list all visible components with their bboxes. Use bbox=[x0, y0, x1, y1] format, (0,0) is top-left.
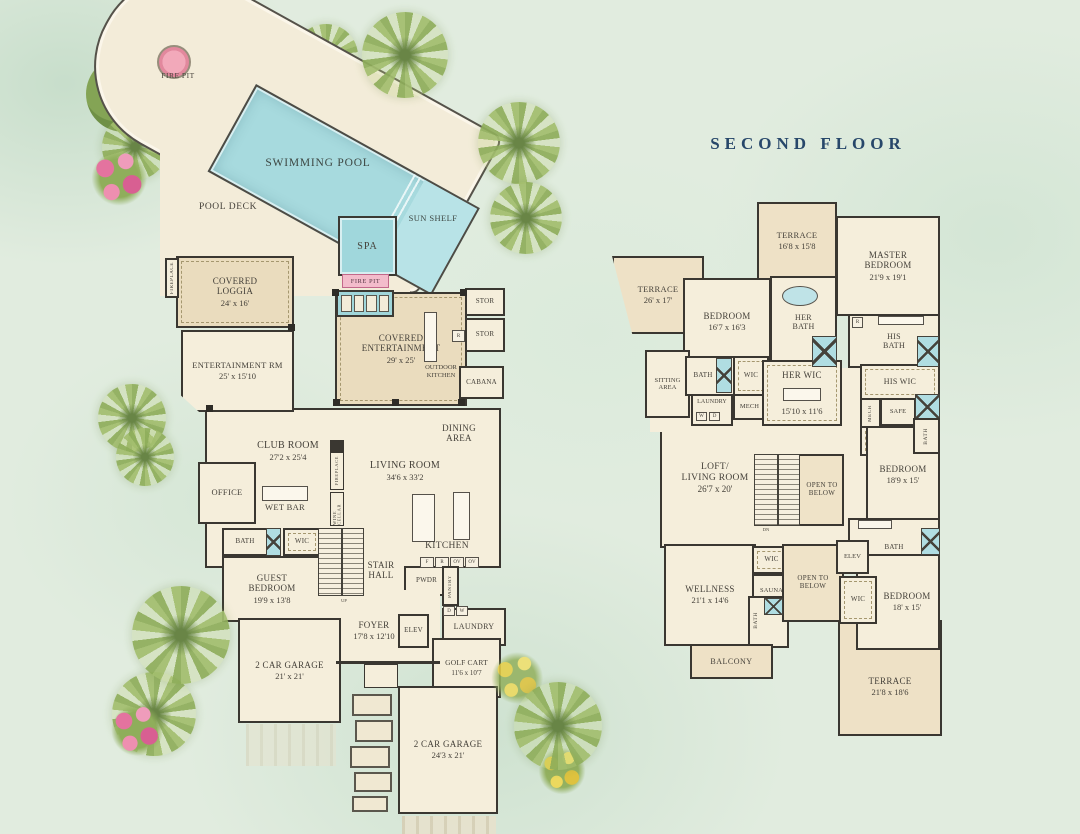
covered-loggia: COVERED LOGGIA 24' x 16' bbox=[176, 256, 294, 328]
wine-cellar: WINE CELLAR bbox=[330, 492, 344, 526]
room-size: 18'9 x 15' bbox=[887, 475, 920, 485]
room-size: 15'10 x 11'6 bbox=[782, 406, 823, 416]
room-name: SITTING AREA bbox=[655, 377, 681, 392]
storage-2: STOR bbox=[465, 318, 505, 352]
column-post bbox=[460, 289, 467, 296]
garage-2: 2 CAR GARAGE 24'3 x 21' bbox=[398, 686, 498, 814]
bath-1: BATH bbox=[222, 528, 268, 556]
room-size: 16'7 x 16'3 bbox=[708, 322, 745, 332]
living-fireplace: FIREPLACE bbox=[330, 452, 344, 490]
entry-porch bbox=[364, 664, 398, 688]
kitchen-island-2 bbox=[453, 492, 470, 540]
stair-hall-label: STAIR HALL bbox=[358, 560, 404, 580]
room-name: SAUNA bbox=[760, 587, 783, 594]
wet-bar-counter bbox=[262, 486, 308, 501]
outdoor-kitchen-island bbox=[424, 312, 437, 362]
room-name: TERRACE bbox=[868, 676, 911, 686]
room-name: HIS BATH bbox=[883, 332, 905, 350]
room-name: 2 CAR GARAGE bbox=[414, 739, 483, 749]
outdoor-kitchen-label: OUTDOOR KITCHEN bbox=[417, 364, 465, 380]
room-name: GUEST BEDROOM bbox=[248, 573, 295, 593]
open-to-below-label: OPEN TO BELOW bbox=[797, 575, 828, 591]
plant-pink-flowers bbox=[106, 700, 166, 760]
room-name: MASTER BEDROOM bbox=[864, 250, 911, 270]
room-name: ELEV bbox=[844, 553, 861, 560]
stepping-stone bbox=[350, 746, 390, 768]
room-name: BEDROOM bbox=[879, 464, 926, 474]
room-size: 17'8 x 12'10 bbox=[353, 631, 394, 641]
driveway-2 bbox=[246, 724, 336, 766]
room-name: SAFE bbox=[890, 408, 906, 415]
room-name: HER WIC bbox=[782, 370, 822, 380]
room-size: 21'1 x 14'6 bbox=[691, 595, 728, 605]
swimming-pool-label: SWIMMING POOL bbox=[262, 157, 374, 169]
room-size: 21'8 x 18'6 bbox=[871, 687, 908, 697]
chip-label: W bbox=[699, 414, 704, 419]
stepping-stone bbox=[352, 796, 388, 812]
room-name: LAUNDRY bbox=[697, 399, 727, 406]
her-shower bbox=[812, 336, 837, 367]
staircase-2 bbox=[754, 454, 800, 526]
up-label: UP bbox=[336, 598, 352, 603]
wine-cellar-label: WINE CELLAR bbox=[333, 493, 342, 525]
kitchen-island bbox=[412, 494, 435, 542]
room-name: TERRACE bbox=[777, 231, 818, 241]
loft-label: LOFT/ LIVING ROOM 26'7 x 20' bbox=[672, 462, 758, 495]
his-bath-vanity bbox=[878, 316, 924, 325]
wellness-room: WELLNESS 21'1 x 14'6 bbox=[664, 544, 756, 646]
sun-shelf-label: SUN SHELF bbox=[400, 213, 466, 223]
pantry-label: PANTRY bbox=[448, 575, 453, 598]
room-name: WELLNESS bbox=[685, 584, 734, 594]
elevator-2: ELEV bbox=[836, 540, 869, 574]
shower-3 bbox=[915, 394, 940, 420]
chip-label: W bbox=[460, 609, 465, 614]
room-name: STAIR HALL bbox=[368, 560, 395, 580]
mech-label: MECH bbox=[868, 405, 873, 422]
dn-label: DN bbox=[758, 527, 774, 532]
plant-pink-flowers bbox=[86, 146, 150, 210]
pantry: PANTRY bbox=[442, 566, 459, 606]
his-bath-chip: R bbox=[852, 317, 863, 328]
storage-1: STOR bbox=[465, 288, 505, 316]
shower-1 bbox=[266, 528, 281, 556]
plant-palm bbox=[362, 12, 448, 98]
room-name: BATH bbox=[693, 372, 712, 380]
room-size: 34'6 x 33'2 bbox=[386, 472, 423, 482]
plant-palm bbox=[132, 586, 230, 684]
column-post bbox=[392, 399, 399, 406]
stepping-stone bbox=[354, 772, 392, 792]
master-bedroom: MASTER BEDROOM 21'9 x 19'1 bbox=[836, 216, 940, 316]
room-name: FOYER bbox=[358, 620, 389, 630]
room-name: HER BATH bbox=[792, 313, 814, 331]
plant-palm bbox=[490, 182, 562, 254]
room-name: LAUNDRY bbox=[454, 622, 495, 631]
column-post bbox=[288, 324, 295, 331]
second-floor-title: SECOND FLOOR bbox=[698, 134, 918, 154]
bath-3: BATH bbox=[913, 418, 940, 454]
open-to-below-2: OPEN TO BELOW bbox=[782, 544, 844, 622]
fireplace-label: FIREPLACE bbox=[170, 262, 175, 294]
room-name: CLUB ROOM bbox=[257, 440, 319, 451]
column-post bbox=[333, 399, 340, 406]
cabana: CABANA bbox=[459, 366, 504, 399]
spa: SPA bbox=[338, 216, 397, 276]
stepping-stone bbox=[352, 694, 392, 716]
floor-plan-canvas: FIRE PIT SWIMMING POOL POOL DECK SUN SHE… bbox=[0, 0, 1080, 834]
column-post bbox=[206, 405, 213, 412]
chip-label: R bbox=[440, 560, 443, 565]
room-name: ENTERTAINMENT RM bbox=[192, 361, 283, 371]
oven-chip-2: OV bbox=[465, 557, 479, 568]
dining-area-label: DINING AREA bbox=[430, 423, 488, 443]
balcony: BALCONY bbox=[690, 644, 773, 679]
column-post bbox=[332, 289, 339, 296]
chip-label: D bbox=[713, 414, 717, 419]
room-name: STOR bbox=[476, 331, 495, 339]
room-name: TERRACE bbox=[638, 285, 679, 295]
mech-2: MECH bbox=[860, 398, 881, 428]
fireplace-label: FIREPLACE bbox=[335, 456, 340, 485]
his-shower bbox=[917, 336, 939, 367]
room-size: 27'2 x 25'4 bbox=[269, 452, 306, 462]
room-name: BATH bbox=[235, 538, 254, 546]
room-name: KITCHEN bbox=[425, 541, 469, 552]
washer-chip: W bbox=[456, 606, 468, 616]
entertainment-room: ENTERTAINMENT RM 25' x 15'10 bbox=[181, 330, 294, 412]
room-size: 19'9 x 13'8 bbox=[253, 595, 290, 605]
dryer-chip-2: D bbox=[709, 412, 720, 421]
plant-palm bbox=[116, 428, 174, 486]
room-size: 26'7 x 20' bbox=[698, 484, 733, 495]
guest-bedroom: GUEST BEDROOM 19'9 x 13'8 bbox=[222, 556, 322, 622]
water-feature bbox=[336, 290, 394, 317]
room-name: 2 CAR GARAGE bbox=[255, 660, 324, 670]
room-name: STOR bbox=[476, 298, 495, 306]
room-name: BALCONY bbox=[710, 657, 752, 666]
room-name: WIC bbox=[764, 556, 778, 564]
room-size: 16'8 x 15'8 bbox=[778, 241, 815, 251]
wet-bar-label: WET BAR bbox=[254, 503, 316, 513]
bathtub-icon bbox=[782, 286, 818, 306]
room-size: 25' x 15'10 bbox=[219, 371, 256, 381]
pool-deck-label: POOL DECK bbox=[186, 202, 270, 212]
room-name: HIS WIC bbox=[884, 377, 916, 386]
room-name: WIC bbox=[851, 596, 865, 604]
room-name: BEDROOM bbox=[883, 591, 930, 601]
bath-label: BATH bbox=[754, 612, 760, 629]
sitting-area: SITTING AREA bbox=[645, 350, 690, 418]
chip-label: R bbox=[457, 334, 460, 339]
chip-label: D bbox=[447, 609, 451, 614]
open-to-below-label: OPEN TO BELOW bbox=[806, 482, 837, 498]
chip-label: F bbox=[426, 560, 429, 565]
room-size: 26' x 17' bbox=[644, 295, 673, 305]
room-size: 21' x 21' bbox=[275, 671, 304, 681]
shower-2 bbox=[716, 358, 732, 393]
bath-5-label: BATH bbox=[750, 600, 763, 640]
room-name: WIC bbox=[295, 538, 309, 546]
bath-4-vanity bbox=[858, 520, 892, 529]
chip-label: OV bbox=[453, 560, 460, 565]
room-name: PWDR bbox=[416, 577, 437, 585]
room-name: CABANA bbox=[466, 379, 497, 387]
stepping-stone bbox=[355, 720, 393, 742]
room-size: 29' x 25' bbox=[387, 355, 416, 365]
office: OFFICE bbox=[198, 462, 256, 524]
bedroom-1: BEDROOM 16'7 x 16'3 bbox=[683, 278, 771, 366]
room-size: 18' x 15' bbox=[893, 602, 922, 612]
driveway bbox=[402, 816, 496, 834]
shower-5 bbox=[764, 598, 783, 615]
bath-label: BATH bbox=[924, 428, 930, 445]
terrace-top: TERRACE 16'8 x 15'8 bbox=[757, 202, 837, 280]
safe-room: SAFE bbox=[880, 398, 916, 426]
wic-5: WIC bbox=[839, 576, 877, 624]
fire-pit-label: FIRE PIT bbox=[154, 71, 202, 80]
living-room-label: LIVING ROOM 34'6 x 33'2 bbox=[358, 460, 452, 482]
outdoor-fridge-chip: R bbox=[452, 330, 465, 342]
her-wic-island bbox=[783, 388, 821, 401]
room-name: BATH bbox=[884, 544, 903, 552]
chip-label: R bbox=[856, 320, 859, 325]
shower-4 bbox=[921, 528, 940, 555]
room-size: 24'3 x 21' bbox=[432, 750, 465, 760]
room-name: ELEV bbox=[404, 627, 423, 635]
foyer-south-wall bbox=[336, 661, 440, 664]
room-name: OFFICE bbox=[211, 488, 242, 498]
room-name: WIC bbox=[744, 372, 758, 380]
room-name: COVERED LOGGIA bbox=[213, 276, 258, 296]
room-name: LOFT/ LIVING ROOM bbox=[682, 462, 749, 483]
laundry-2: LAUNDRY bbox=[691, 394, 733, 426]
room-size: 24' x 16' bbox=[221, 298, 250, 308]
foyer-label: FOYER 17'8 x 12'10 bbox=[344, 620, 404, 641]
room-name: GOLF CART bbox=[445, 659, 488, 667]
chip-label: OV bbox=[468, 560, 475, 565]
room-name: WET BAR bbox=[265, 503, 305, 513]
room-size: 21'9 x 19'1 bbox=[869, 272, 906, 282]
room-name: MECH bbox=[740, 403, 759, 410]
washer-chip-2: W bbox=[696, 412, 707, 421]
garage-1: 2 CAR GARAGE 21' x 21' bbox=[238, 618, 341, 723]
plant-palm bbox=[478, 102, 560, 184]
room-name: BEDROOM bbox=[703, 311, 750, 321]
room-name: DINING AREA bbox=[442, 423, 476, 443]
kitchen-label: KITCHEN bbox=[416, 541, 478, 552]
club-room-label: CLUB ROOM 27'2 x 25'4 bbox=[242, 440, 334, 462]
loggia-fireplace: FIREPLACE bbox=[165, 258, 179, 298]
spa-fire-pit-label: FIRE PIT bbox=[342, 274, 389, 288]
room-size: 11'6 x 10'7 bbox=[451, 669, 481, 677]
room-name: LIVING ROOM bbox=[370, 460, 440, 471]
spa-label: SPA bbox=[357, 241, 377, 252]
dryer-chip: D bbox=[443, 606, 455, 616]
plant-palm bbox=[514, 682, 602, 770]
column-post bbox=[458, 399, 465, 406]
fridge-chip: F bbox=[420, 557, 434, 568]
wic-1: WIC bbox=[283, 528, 321, 556]
